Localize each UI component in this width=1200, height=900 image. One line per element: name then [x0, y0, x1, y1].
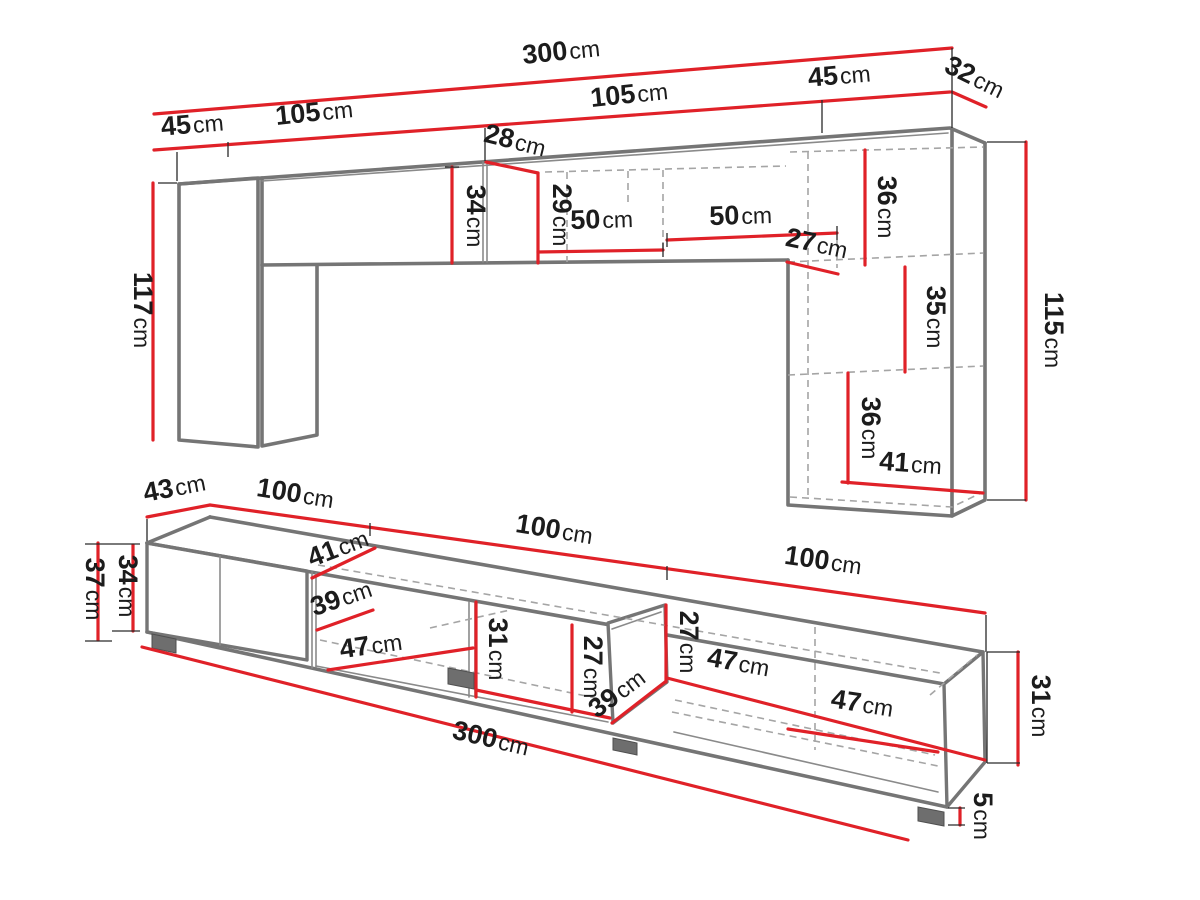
dim-label-stand-foot-height: 5cm: [968, 792, 998, 840]
dim-label-top-shelf-1: 50cm: [570, 203, 634, 235]
dim-label-stand-end-height: 31cm: [1026, 675, 1056, 738]
dim-line-47b: [667, 678, 985, 760]
dim-label-stand-total-width: 300cm: [450, 715, 532, 762]
dim-label-stand-section-2: 100cm: [514, 508, 595, 550]
stand-right-end-panel: [944, 652, 985, 807]
dim-label-top-shelf-2: 50cm: [709, 199, 773, 231]
dim-label-top-total-width: 300cm: [521, 32, 601, 70]
dim-label-top-segment-1: 105cm: [274, 93, 354, 131]
dim-label-top-right-depth: 32cm: [940, 50, 1010, 104]
dim-label-right-height: 115cm: [1039, 292, 1069, 368]
dim-label-stand-body-height: 34cm: [113, 555, 143, 618]
dim-label-stand-inner-width-3: 47cm: [829, 683, 896, 722]
left-cabinet-front: [179, 178, 258, 447]
right-floor-edge: [674, 732, 938, 792]
stand-foot: [448, 668, 474, 689]
row-top-inner-edge: [262, 133, 948, 181]
diagram-canvas: 300cm 45cm 105cm 105cm 45cm 32cm 28cm 34…: [0, 0, 1200, 900]
dim-line-41: [842, 482, 983, 493]
stand-foot: [918, 807, 944, 826]
dim-label-right-inner-width: 41cm: [878, 446, 943, 480]
dim-label-left-height: 117cm: [128, 272, 158, 348]
hidden-bottom: [790, 492, 983, 507]
dim-label-right-shelf-upper: 36cm: [872, 176, 902, 239]
dim-label-right-shelf-middle: 35cm: [921, 286, 951, 349]
dim-label-top-band-left: 34cm: [461, 185, 491, 248]
dim-label-top-right-width: 45cm: [807, 57, 872, 92]
dim-label-stand-section-3: 100cm: [783, 540, 864, 581]
dim-label-stand-depth: 43cm: [141, 466, 208, 507]
stand-foot: [613, 738, 637, 755]
dim-label-stand-height-total: 37cm: [80, 558, 110, 621]
dim-label-top-segment-2: 105cm: [589, 75, 669, 113]
dim-label-stand-inner-depth-2: 39cm: [307, 573, 376, 622]
row-bottom-edge: [262, 260, 788, 265]
dim-line-43: [147, 505, 210, 517]
dim-label-stand-section-1: 100cm: [255, 472, 336, 514]
dim-label-stand-inner-height-1: 31cm: [483, 618, 513, 681]
dim-label-top-left-depth: 45cm: [160, 106, 225, 141]
hidden-edge: [545, 166, 786, 172]
dim-label-stand-door-height: 27cm: [674, 611, 704, 674]
dim-label-stand-inner-width-2: 47cm: [705, 642, 772, 682]
dim-label-top-notch-depth: 28cm: [481, 118, 549, 162]
left-cabinet-side: [262, 178, 317, 446]
hidden-edge: [790, 147, 983, 152]
furniture-dimension-diagram: 300cm 45cm 105cm 105cm 45cm 32cm 28cm 34…: [0, 0, 1200, 900]
dim-label-top-drop: 27cm: [783, 222, 851, 264]
dim-line-27: [787, 262, 838, 274]
dim-line-50a: [538, 250, 663, 252]
stand-left-side-top: [147, 517, 210, 543]
